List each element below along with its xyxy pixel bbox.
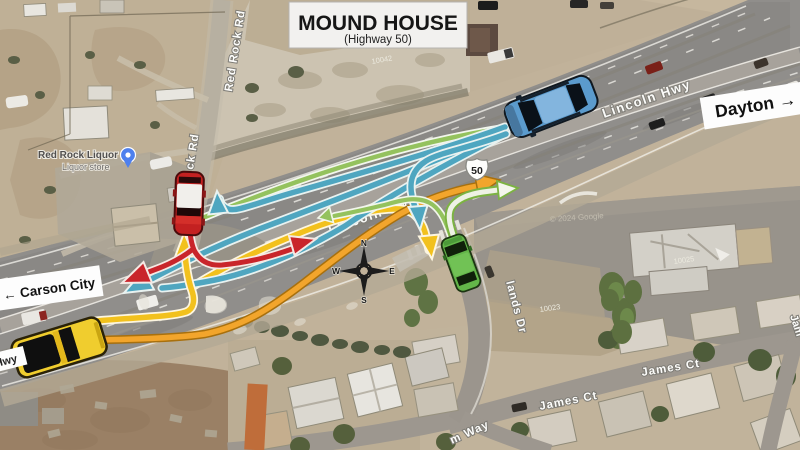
svg-text:(Highway 50): (Highway 50) [344, 34, 412, 46]
svg-text:S: S [361, 295, 367, 305]
svg-text:50: 50 [471, 165, 483, 177]
svg-text:N: N [361, 238, 367, 248]
svg-text:Red Rock Liquor: Red Rock Liquor [38, 150, 118, 161]
svg-text:Liquor store: Liquor store [62, 162, 110, 172]
svg-text:MOUND HOUSE: MOUND HOUSE [298, 12, 458, 35]
svg-text:E: E [389, 266, 395, 276]
svg-text:W: W [332, 266, 341, 276]
